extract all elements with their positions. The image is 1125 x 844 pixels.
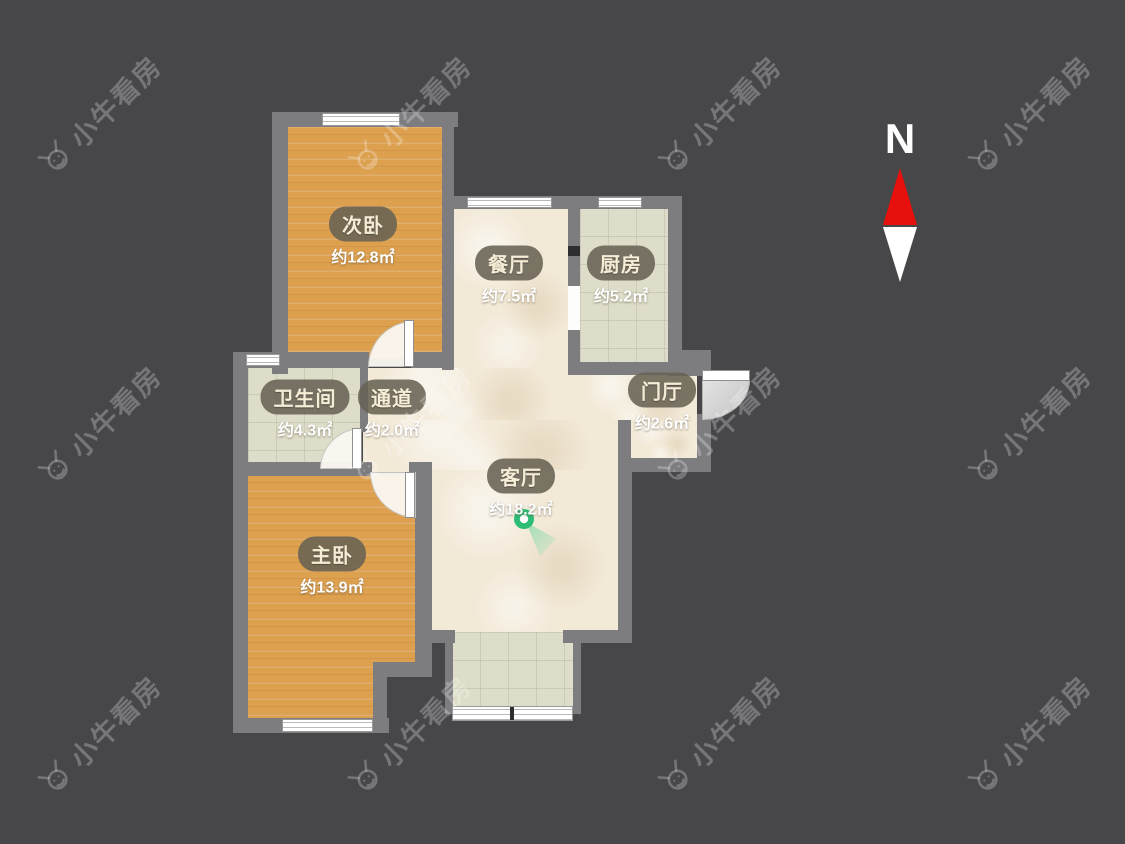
room-name: 客厅 <box>487 459 555 494</box>
watermark: 小牛看房 <box>651 46 790 185</box>
label-corridor: 通道 约2.0㎡ <box>358 380 426 441</box>
label-entry-hall: 门厅 约2.6㎡ <box>628 373 696 434</box>
room-name: 通道 <box>358 380 426 415</box>
watermark-text: 小牛看房 <box>990 666 1100 776</box>
kitchen-door-opening <box>568 286 580 330</box>
room-area: 约4.3㎡ <box>261 417 350 441</box>
door-leaf-master-bedroom <box>405 472 415 518</box>
watermark-text: 小牛看房 <box>60 666 170 776</box>
watermark: 小牛看房 <box>651 666 790 805</box>
watermark-text: 小牛看房 <box>60 46 170 156</box>
label-master-bedroom: 主卧 约13.9㎡ <box>298 537 366 598</box>
room-area: 约2.0㎡ <box>358 417 426 441</box>
bull-logo-icon <box>962 754 1010 802</box>
compass: N <box>855 118 945 284</box>
window <box>322 113 400 126</box>
bull-logo-icon <box>32 134 80 182</box>
window <box>467 197 552 208</box>
wall <box>445 632 453 714</box>
label-dining-room: 餐厅 约7.5㎡ <box>475 246 543 307</box>
wall <box>411 352 454 368</box>
door-leaf-secondary-bedroom <box>404 320 414 367</box>
watermark-text: 小牛看房 <box>60 356 170 466</box>
label-bathroom: 卫生间 约4.3㎡ <box>261 380 350 441</box>
wall <box>415 470 432 670</box>
watermark: 小牛看房 <box>961 356 1100 495</box>
window <box>246 354 280 366</box>
north-arrow-icon <box>882 168 918 284</box>
wall <box>618 460 632 643</box>
balcony-floor <box>452 632 573 712</box>
room-area: 约12.8㎡ <box>329 244 397 268</box>
wall <box>272 112 288 374</box>
window-mullion <box>510 707 514 720</box>
wall <box>668 196 682 376</box>
room-master-bedroom-floor <box>248 666 373 720</box>
watermark-text: 小牛看房 <box>990 46 1100 156</box>
room-name: 餐厅 <box>475 246 543 281</box>
watermark: 小牛看房 <box>31 666 170 805</box>
watermark: 小牛看房 <box>31 46 170 185</box>
label-kitchen: 厨房 约5.2㎡ <box>587 246 655 307</box>
room-name: 次卧 <box>329 207 397 242</box>
room-area: 约13.9㎡ <box>298 574 366 598</box>
floor-plan-screenshot: 次卧 约12.8㎡ 餐厅 约7.5㎡ 厨房 约5.2㎡ 卫生间 约4.3㎡ 通道… <box>0 0 1125 844</box>
bull-logo-icon <box>652 754 700 802</box>
room-name: 主卧 <box>298 537 366 572</box>
wall <box>233 352 248 476</box>
watermark-text: 小牛看房 <box>680 666 790 776</box>
north-label: N <box>855 118 945 160</box>
label-living-room: 客厅 约18.2㎡ <box>487 459 555 520</box>
bull-logo-icon <box>342 754 390 802</box>
door-arc-entrance <box>702 380 750 420</box>
bull-logo-icon <box>962 134 1010 182</box>
wall <box>442 112 454 370</box>
bull-logo-icon <box>652 134 700 182</box>
room-name: 门厅 <box>628 373 696 408</box>
wall <box>233 462 248 733</box>
door-leaf-entrance <box>702 370 750 381</box>
watermark: 小牛看房 <box>961 46 1100 185</box>
room-area: 约18.2㎡ <box>487 496 555 520</box>
watermark-text: 小牛看房 <box>990 356 1100 466</box>
bull-logo-icon <box>962 444 1010 492</box>
wall <box>573 632 581 714</box>
room-name: 卫生间 <box>261 380 350 415</box>
label-secondary-bedroom: 次卧 约12.8㎡ <box>329 207 397 268</box>
kitchen-door-frame <box>568 246 580 256</box>
bull-logo-icon <box>32 754 80 802</box>
watermark: 小牛看房 <box>961 666 1100 805</box>
room-area: 约7.5㎡ <box>475 283 543 307</box>
window <box>598 197 642 208</box>
bull-logo-icon <box>32 444 80 492</box>
room-area: 约5.2㎡ <box>587 283 655 307</box>
room-name: 厨房 <box>587 246 655 281</box>
room-area: 约2.6㎡ <box>628 410 696 434</box>
watermark: 小牛看房 <box>31 356 170 495</box>
window <box>282 719 373 732</box>
watermark-text: 小牛看房 <box>680 46 790 156</box>
